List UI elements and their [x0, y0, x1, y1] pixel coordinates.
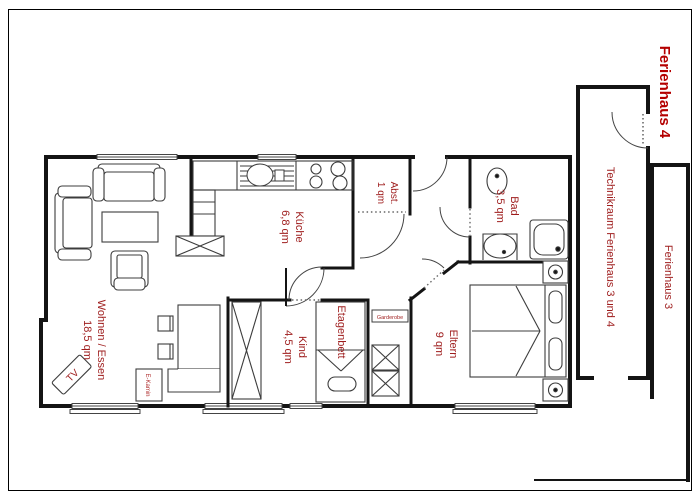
fridge-cabinet	[176, 236, 224, 256]
garderobe-label: Garderobe	[377, 315, 403, 321]
garderobe-band: Garderobe	[372, 310, 408, 322]
plan-title: Ferienhaus 4	[656, 46, 673, 139]
label-ferienhaus3: Ferienhaus 3	[662, 245, 674, 309]
label-etagenbett: Etagenbett	[335, 305, 347, 358]
svg-text:Abst.: Abst.	[388, 182, 399, 205]
label-technikraum: Technikraum Ferienhaus 3 und 4	[604, 167, 616, 327]
floorplan-image: TV E-Kamin Garderobe	[0, 0, 700, 500]
page-border	[9, 10, 692, 491]
svg-text:Bad: Bad	[508, 196, 520, 216]
kind-wardrobe	[232, 302, 261, 399]
corridor-shelves	[372, 345, 399, 396]
sofa-top	[93, 164, 165, 201]
floorplan-svg: TV E-Kamin Garderobe	[0, 0, 700, 500]
shower	[530, 220, 568, 259]
svg-text:Eltern: Eltern	[447, 330, 459, 359]
svg-text:6,8 qm: 6,8 qm	[279, 210, 291, 244]
bath-sink	[483, 234, 517, 260]
svg-text:Küche: Küche	[293, 211, 305, 242]
armchair	[111, 251, 148, 290]
double-bed	[470, 285, 566, 377]
sofa-left	[55, 186, 92, 260]
svg-text:18,5 qm: 18,5 qm	[81, 320, 93, 360]
svg-text:1 qm: 1 qm	[375, 182, 386, 204]
svg-text:4,5 qm: 4,5 qm	[282, 330, 294, 364]
svg-text:9 qm: 9 qm	[433, 332, 445, 356]
svg-text:Kind: Kind	[296, 336, 308, 358]
svg-text:Wohnen / Essen: Wohnen / Essen	[95, 300, 107, 381]
svg-text:3,5 qm: 3,5 qm	[494, 189, 506, 223]
e-kamin: E-Kamin	[136, 369, 162, 401]
coffee-table	[102, 212, 158, 242]
e-kamin-label: E-Kamin	[144, 373, 150, 396]
